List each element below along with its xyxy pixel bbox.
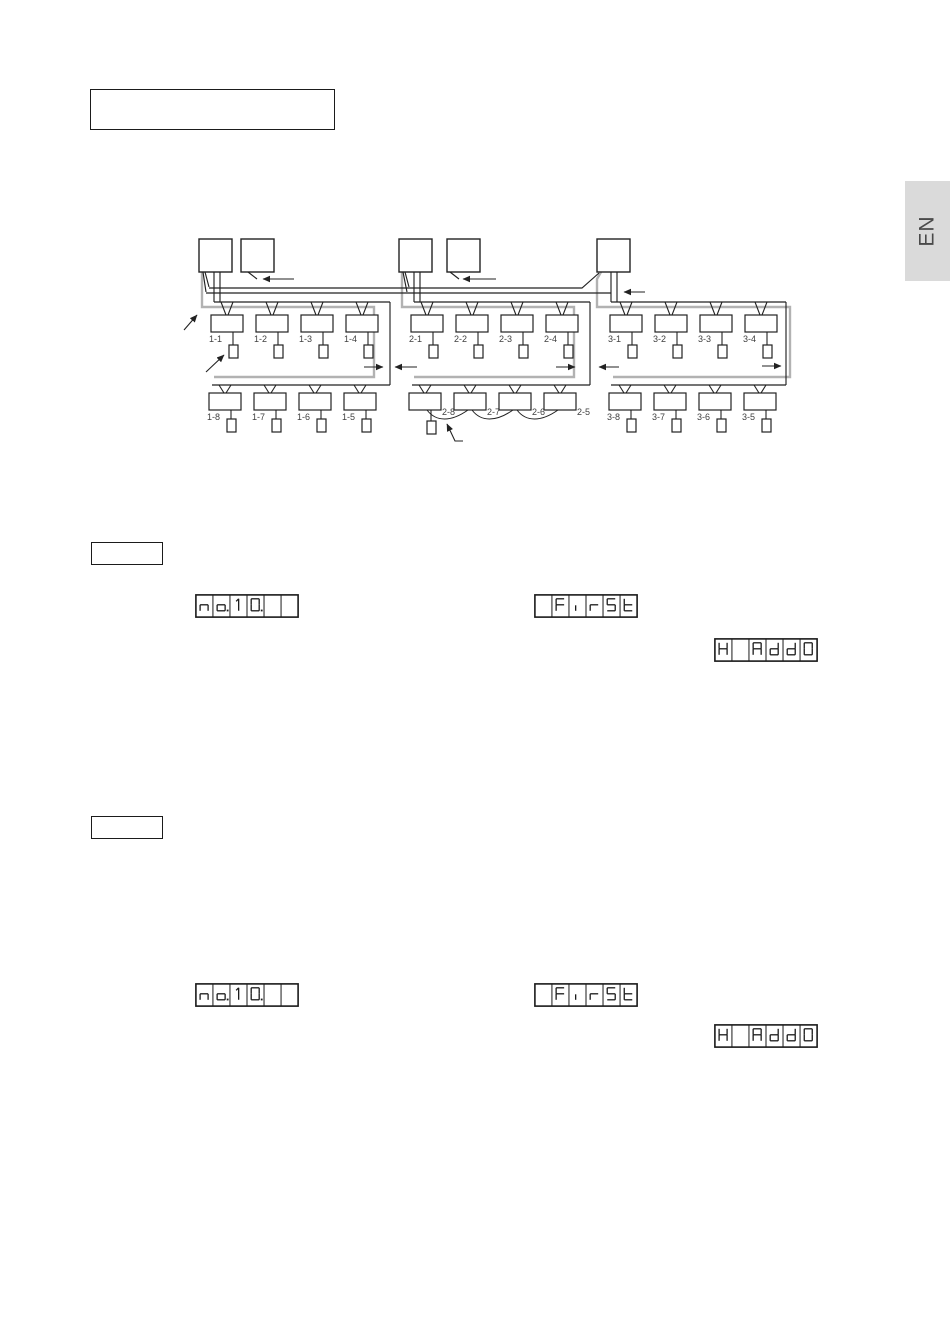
unit-label: 3-4 xyxy=(743,334,756,344)
unit-drop-wires xyxy=(664,385,676,393)
unit-label: 1-2 xyxy=(254,334,267,344)
remote-controller-box xyxy=(519,345,528,358)
indoor-unit-box xyxy=(744,393,776,410)
unit-label: 3-8 xyxy=(607,412,620,422)
indoor-unit-box xyxy=(456,315,488,332)
remote-controller-box xyxy=(628,345,637,358)
seven-segment-display-first xyxy=(534,594,638,623)
unit-label: 1-5 xyxy=(342,412,355,422)
remote-controller-box xyxy=(272,419,281,432)
unit-label: 2-6 xyxy=(532,407,545,417)
indoor-unit-box xyxy=(346,315,378,332)
indoor-unit-box xyxy=(411,315,443,332)
note-placeholder-box-2 xyxy=(91,816,163,839)
display-frame xyxy=(714,1024,818,1048)
arrow-to-remote-controller xyxy=(206,355,224,372)
unit-drop-wires xyxy=(754,385,766,393)
unit-label: 3-5 xyxy=(742,412,755,422)
unit-label: 3-2 xyxy=(653,334,666,344)
remote-controller-box xyxy=(227,419,236,432)
unit-label: 1-6 xyxy=(297,412,310,422)
indoor-unit-box xyxy=(700,315,732,332)
unit-drop-wires xyxy=(264,385,276,393)
unit-label: 1-3 xyxy=(299,334,312,344)
seven-segment-display-first xyxy=(534,983,638,1012)
unit-label: 3-7 xyxy=(652,412,665,422)
indoor-unit-box xyxy=(609,393,641,410)
wiring-diagram: 1-11-21-31-41-81-71-61-52-12-22-32-42-82… xyxy=(170,225,815,460)
arrow-to-group-wiring xyxy=(447,424,463,441)
remote-controller-box xyxy=(717,419,726,432)
seven-segment-display-no10 xyxy=(195,594,299,623)
note-placeholder-box-1 xyxy=(91,542,163,565)
unit-drop-wires xyxy=(464,385,476,393)
indoor-unit-box xyxy=(544,393,576,410)
indoor-unit-box xyxy=(344,393,376,410)
unit-drop-wires xyxy=(509,385,521,393)
seven-segment-display-haddo xyxy=(714,638,818,667)
unit-drop-wires xyxy=(755,302,767,315)
seven-segment-display-no10 xyxy=(195,983,299,1012)
unit-drop-wires xyxy=(709,385,721,393)
unit-drop-wires xyxy=(219,385,231,393)
decimal-point xyxy=(227,999,229,1001)
display-frame xyxy=(534,983,638,1007)
indoor-unit-box xyxy=(301,315,333,332)
unit-label: 1-7 xyxy=(252,412,265,422)
unit-label: 2-4 xyxy=(544,334,557,344)
unit-label: 2-3 xyxy=(499,334,512,344)
annotation-arrows xyxy=(184,279,781,441)
unit-drop-wires xyxy=(421,302,433,315)
indoor-unit-box xyxy=(209,393,241,410)
display-frame xyxy=(714,638,818,662)
outdoor-units xyxy=(199,239,630,272)
indoor-unit-box xyxy=(254,393,286,410)
indoor-unit-box xyxy=(299,393,331,410)
outdoor-unit-box xyxy=(597,239,630,272)
indoor-unit-box xyxy=(211,315,243,332)
remote-controller-box xyxy=(317,419,326,432)
outdoor-unit-box xyxy=(399,239,432,272)
unit-label: 2-2 xyxy=(454,334,467,344)
remote-controller-box xyxy=(672,419,681,432)
unit-drop-wires xyxy=(554,385,566,393)
indoor-unit-box xyxy=(454,393,486,410)
unit-label: 2-5 xyxy=(577,407,590,417)
display-frame xyxy=(195,594,299,618)
remote-controller-box xyxy=(229,345,238,358)
unit-drop-wires xyxy=(266,302,278,315)
indoor-unit-box xyxy=(499,393,531,410)
remote-controller-box xyxy=(427,421,436,434)
unit-label: 1-4 xyxy=(344,334,357,344)
indoor-unit-box xyxy=(546,315,578,332)
unit-drop-wires xyxy=(511,302,523,315)
unit-label: 1-1 xyxy=(209,334,222,344)
remote-controller-box xyxy=(319,345,328,358)
decimal-point xyxy=(261,999,263,1001)
unit-drop-wires xyxy=(665,302,677,315)
language-tab: EN xyxy=(905,181,950,281)
unit-drop-wires xyxy=(309,385,321,393)
indoor-unit-box xyxy=(699,393,731,410)
remote-controller-box xyxy=(474,345,483,358)
indoor-unit-box xyxy=(610,315,642,332)
remote-controller-box xyxy=(274,345,283,358)
outdoor-unit-box xyxy=(447,239,480,272)
unit-label: 1-8 xyxy=(207,412,220,422)
decimal-point xyxy=(261,610,263,612)
unit-label: 2-1 xyxy=(409,334,422,344)
display-frame xyxy=(195,983,299,1007)
outdoor-unit-box xyxy=(241,239,274,272)
indoor-units: 1-11-21-31-41-81-71-61-52-12-22-32-42-82… xyxy=(207,302,777,434)
unit-label: 2-7 xyxy=(487,407,500,417)
unit-drop-wires xyxy=(356,302,368,315)
remote-controller-box xyxy=(627,419,636,432)
remote-controller-box xyxy=(362,419,371,432)
unit-drop-wires xyxy=(311,302,323,315)
unit-drop-wires xyxy=(419,385,431,393)
unit-label: 3-6 xyxy=(697,412,710,422)
unit-drop-wires xyxy=(466,302,478,315)
unit-drop-wires xyxy=(710,302,722,315)
remote-controller-box xyxy=(762,419,771,432)
outdoor-unit-box xyxy=(199,239,232,272)
seven-segment-display-haddo xyxy=(714,1024,818,1053)
remote-controller-box xyxy=(429,345,438,358)
language-tab-label: EN xyxy=(916,215,940,246)
indoor-unit-box xyxy=(654,393,686,410)
remote-controller-box xyxy=(718,345,727,358)
indoor-unit-box xyxy=(745,315,777,332)
remote-controller-box xyxy=(673,345,682,358)
decimal-point xyxy=(227,610,229,612)
unit-drop-wires xyxy=(619,385,631,393)
remote-controller-box xyxy=(763,345,772,358)
indoor-unit-box xyxy=(256,315,288,332)
indoor-unit-box xyxy=(655,315,687,332)
arrow-to-gray-bus xyxy=(184,315,197,330)
title-placeholder-box xyxy=(90,89,335,130)
unit-label: 2-8 xyxy=(442,407,455,417)
unit-drop-wires xyxy=(221,302,233,315)
remote-controller-box xyxy=(364,345,373,358)
unit-drop-wires xyxy=(354,385,366,393)
unit-drop-wires xyxy=(556,302,568,315)
unit-label: 3-3 xyxy=(698,334,711,344)
display-frame xyxy=(534,594,638,618)
unit-drop-wires xyxy=(620,302,632,315)
indoor-unit-box xyxy=(501,315,533,332)
remote-controller-box xyxy=(564,345,573,358)
unit-label: 3-1 xyxy=(608,334,621,344)
indoor-unit-box xyxy=(409,393,441,410)
